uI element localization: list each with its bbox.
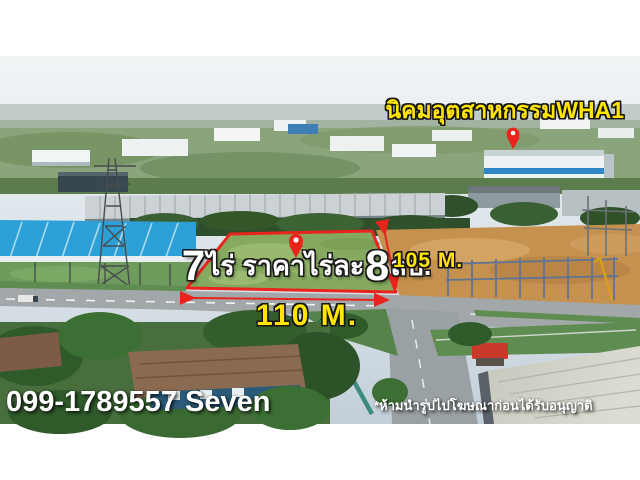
disclaimer-label: *ห้ามนำรูปไปโฆษณาก่อนได้รับอนุญาติ <box>374 399 593 412</box>
wha1-factory-building <box>484 150 614 178</box>
industrial-estate-label: นิคมอุตสาหกรรมWHA1 <box>385 99 624 122</box>
red-awning <box>472 343 508 359</box>
contact-phone-label: 099-1789557 Seven <box>6 388 270 417</box>
plot-area-number: 7 <box>182 245 206 288</box>
side-depth-label: 105 M. <box>393 250 463 271</box>
blue-roof-warehouse <box>0 220 196 263</box>
plot-area-text: ไร่ ราคาไร่ละ <box>206 253 366 280</box>
plot-price-label: 7ไร่ ราคาไร่ละ8ลบ. <box>198 245 416 288</box>
plot-price-number: 8 <box>365 245 389 288</box>
truck <box>18 295 34 302</box>
frontage-width-label: 110 M. <box>256 301 358 331</box>
